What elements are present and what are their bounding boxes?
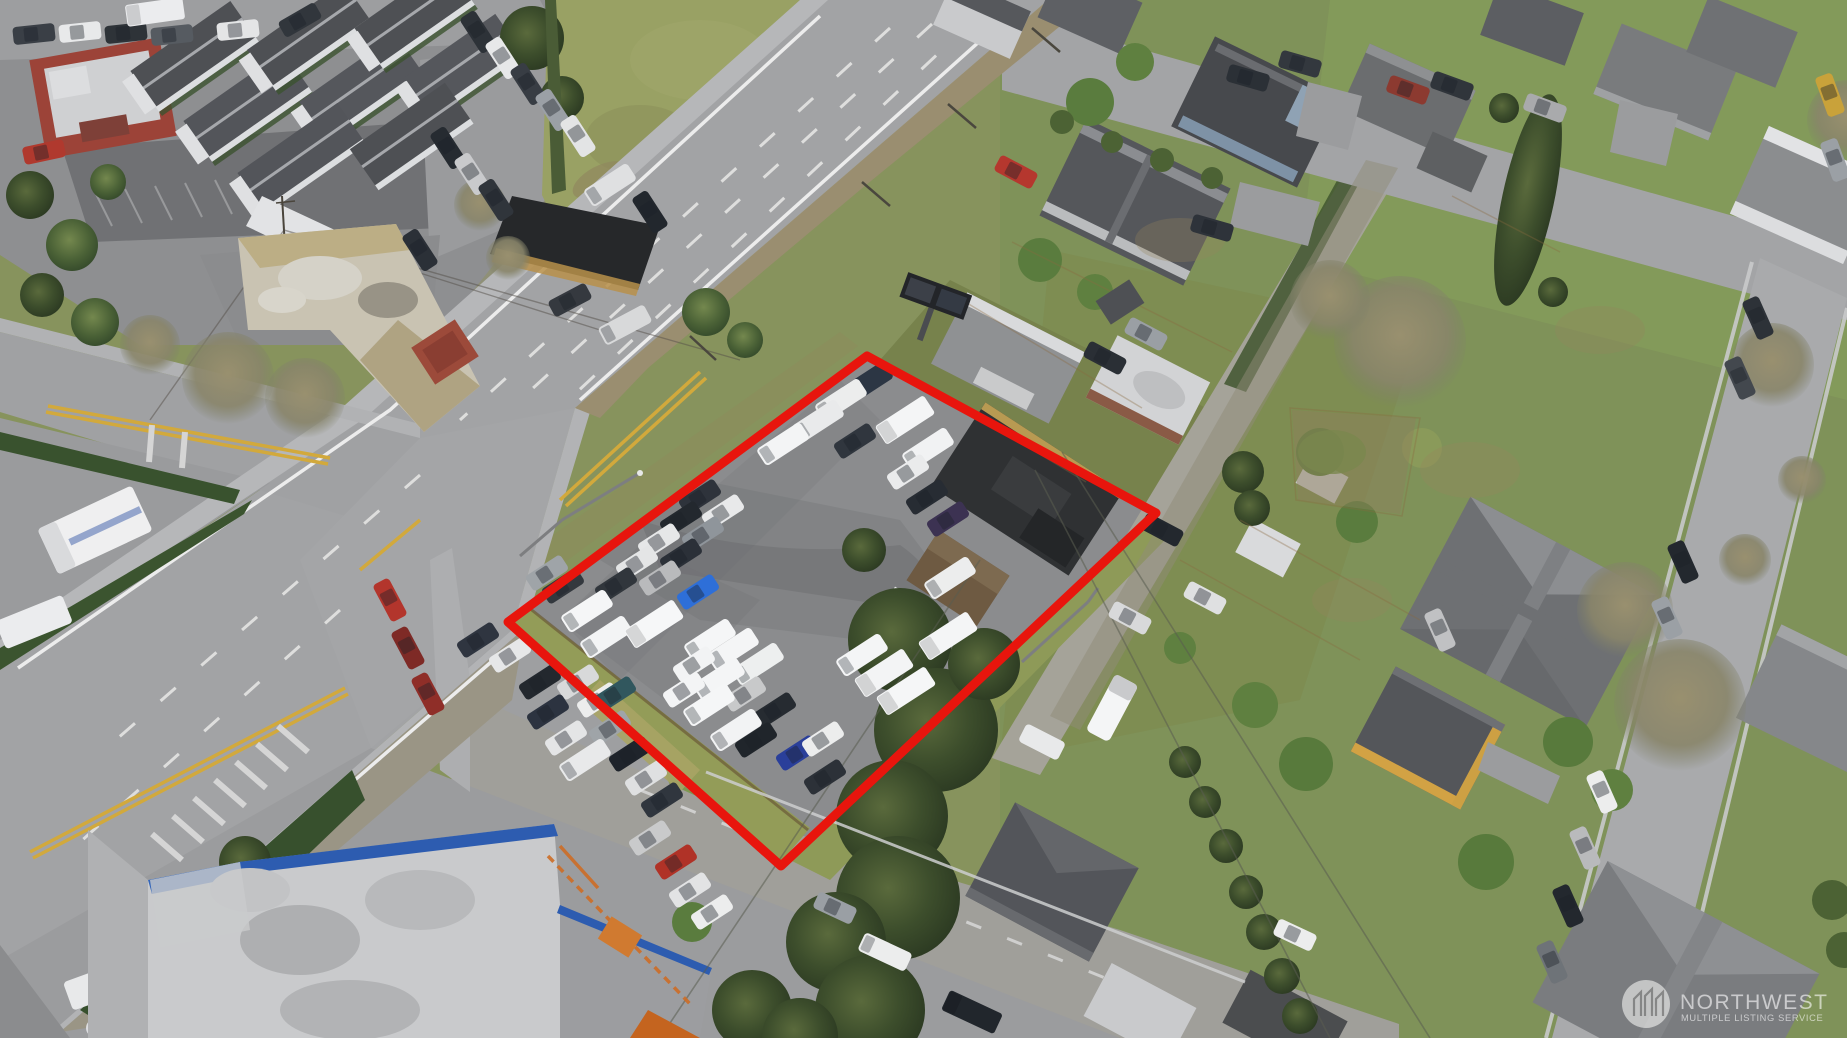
svg-text:NORTHWEST: NORTHWEST (1680, 991, 1828, 1014)
svg-text:MULTIPLE LISTING SERVICE: MULTIPLE LISTING SERVICE (1681, 1013, 1823, 1023)
